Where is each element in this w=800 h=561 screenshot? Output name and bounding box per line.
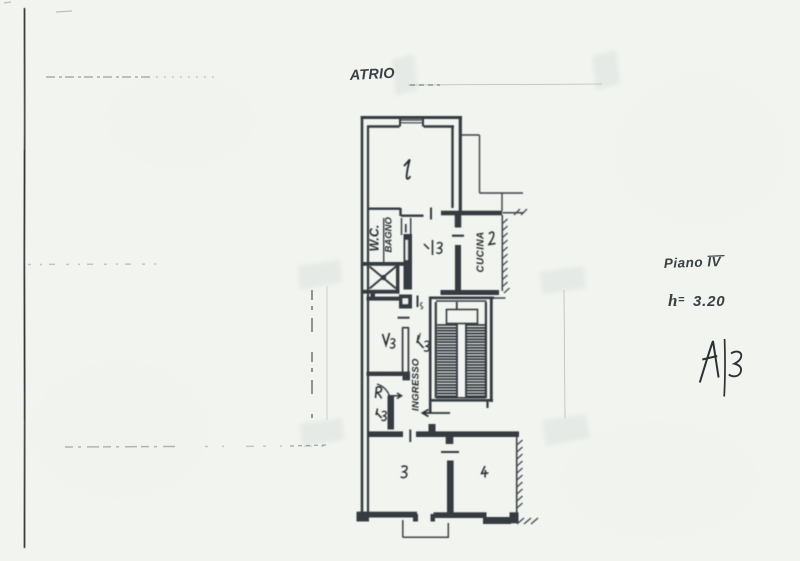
svg-text:BAGNO: BAGNO <box>384 217 395 253</box>
svg-text:h: h <box>668 291 677 310</box>
svg-text:INGRESSO: INGRESSO <box>411 358 422 411</box>
svg-text:3.20: 3.20 <box>693 293 725 310</box>
svg-text:=: = <box>678 294 685 306</box>
svg-text:CUCINA: CUCINA <box>476 231 487 272</box>
svg-text:W.C.: W.C. <box>368 225 382 252</box>
svg-text:ATRIO: ATRIO <box>348 66 395 84</box>
